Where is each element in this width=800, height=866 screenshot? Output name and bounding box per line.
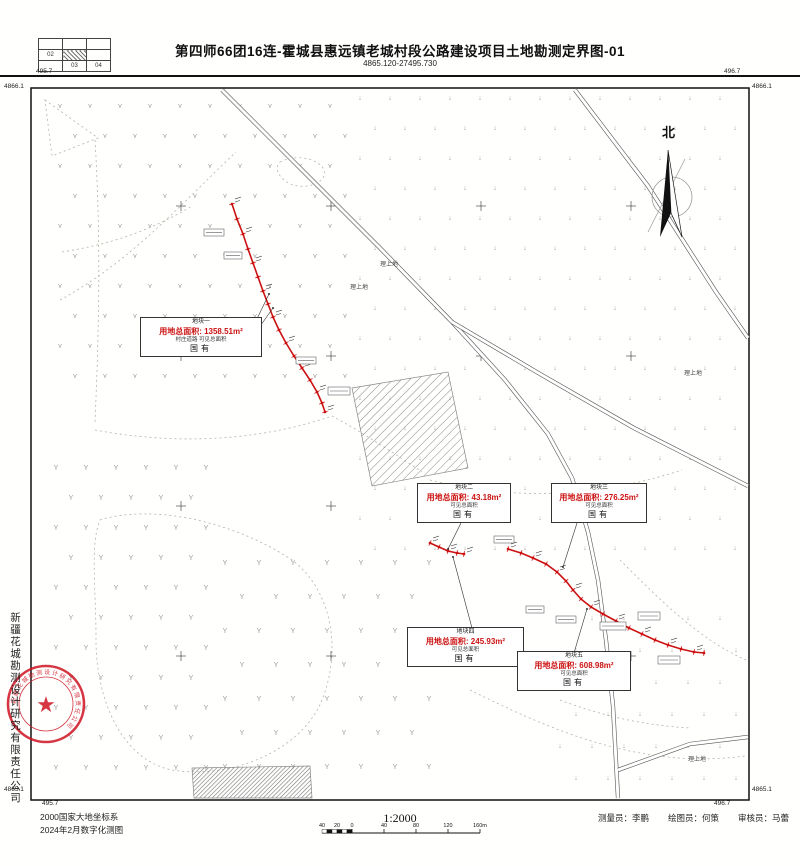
svg-text:↓: ↓ (523, 185, 527, 192)
svg-text:↓: ↓ (628, 335, 632, 342)
svg-text:⋎: ⋎ (117, 103, 122, 110)
parcel-tenure: 国有 (554, 510, 644, 520)
svg-text:↓: ↓ (403, 305, 407, 312)
svg-text:Y: Y (114, 645, 119, 652)
svg-text:↓: ↓ (733, 305, 737, 312)
svg-text:↓: ↓ (673, 305, 677, 312)
svg-text:⋎: ⋎ (102, 193, 107, 200)
svg-text:↓: ↓ (613, 425, 617, 432)
svg-text:Y: Y (223, 696, 228, 703)
svg-text:⋎: ⋎ (117, 163, 122, 170)
svg-text:⋎: ⋎ (297, 223, 302, 230)
svg-text:↓: ↓ (583, 365, 587, 372)
svg-text:↓: ↓ (433, 125, 437, 132)
svg-text:⋎: ⋎ (192, 253, 197, 260)
svg-text:Y: Y (84, 525, 89, 532)
svg-text:⋎: ⋎ (147, 163, 152, 170)
svg-text:↓: ↓ (718, 95, 722, 102)
svg-text:Y: Y (274, 594, 279, 601)
svg-text:↓: ↓ (638, 775, 642, 782)
svg-text:⋎: ⋎ (177, 223, 182, 230)
svg-text:↓: ↓ (628, 275, 632, 282)
svg-text:⋎: ⋎ (342, 373, 347, 380)
svg-text:↓: ↓ (590, 615, 594, 622)
svg-text:Y: Y (257, 628, 262, 635)
svg-text:↓: ↓ (658, 395, 662, 402)
svg-text:⋎: ⋎ (222, 133, 227, 140)
svg-text:↓: ↓ (718, 679, 722, 686)
parcel-tenure: 国有 (410, 654, 521, 664)
svg-text:Y: Y (159, 495, 164, 502)
svg-text:⋎: ⋎ (57, 223, 62, 230)
svg-text:⋎: ⋎ (252, 193, 257, 200)
svg-text:↓: ↓ (622, 743, 626, 750)
svg-text:Y: Y (223, 628, 228, 635)
svg-text:Y: Y (84, 465, 89, 472)
svg-text:Y: Y (174, 585, 179, 592)
svg-text:↓: ↓ (568, 275, 572, 282)
svg-text:↓: ↓ (493, 245, 497, 252)
svg-text:↓: ↓ (358, 455, 362, 462)
svg-text:↓: ↓ (688, 335, 692, 342)
svg-text:↓: ↓ (733, 485, 737, 492)
svg-text:⋎: ⋎ (87, 283, 92, 290)
parcel-area: 用地总面积: 1358.51m² (143, 327, 259, 337)
parcel-tenure: 国有 (143, 344, 259, 354)
svg-text:↓: ↓ (448, 155, 452, 162)
svg-text:↓: ↓ (478, 95, 482, 102)
svg-text:⋎: ⋎ (57, 103, 62, 110)
svg-text:⋎: ⋎ (147, 283, 152, 290)
svg-text:↓: ↓ (613, 365, 617, 372)
svg-text:↓: ↓ (583, 185, 587, 192)
svg-text:↓: ↓ (718, 275, 722, 282)
svg-text:↓: ↓ (418, 215, 422, 222)
svg-text:⋎: ⋎ (222, 193, 227, 200)
parcel-number: 地块一 (143, 319, 259, 327)
svg-text:↓: ↓ (613, 305, 617, 312)
svg-text:↓: ↓ (508, 395, 512, 402)
svg-text:⋎: ⋎ (222, 373, 227, 380)
svg-text:Y: Y (54, 585, 59, 592)
svg-text:↓: ↓ (686, 679, 690, 686)
svg-text:↓: ↓ (478, 215, 482, 222)
svg-text:Y: Y (359, 628, 364, 635)
svg-text:↓: ↓ (643, 125, 647, 132)
svg-text:↓: ↓ (388, 275, 392, 282)
svg-text:↓: ↓ (433, 365, 437, 372)
svg-text:⋎: ⋎ (87, 163, 92, 170)
svg-text:↓: ↓ (568, 455, 572, 462)
svg-text:↓: ↓ (463, 185, 467, 192)
svg-text:Y: Y (376, 662, 381, 669)
svg-text:⋎: ⋎ (252, 373, 257, 380)
svg-text:⋎: ⋎ (267, 223, 272, 230)
svg-text:↓: ↓ (508, 215, 512, 222)
svg-text:Y: Y (359, 560, 364, 567)
svg-text:↓: ↓ (654, 679, 658, 686)
svg-text:↓: ↓ (670, 775, 674, 782)
svg-text:↓: ↓ (703, 185, 707, 192)
svg-text:Y: Y (144, 765, 149, 772)
corner-label-topleft-easting: 495.7 (36, 68, 52, 75)
svg-text:Y: Y (376, 594, 381, 601)
svg-text:Y: Y (144, 465, 149, 472)
svg-text:↓: ↓ (703, 245, 707, 252)
svg-text:↓: ↓ (373, 485, 377, 492)
svg-text:Y: Y (174, 465, 179, 472)
svg-text:↓: ↓ (658, 155, 662, 162)
svg-text:↓: ↓ (358, 215, 362, 222)
svg-text:⋎: ⋎ (282, 133, 287, 140)
svg-text:Y: Y (410, 594, 415, 601)
svg-text:Y: Y (427, 560, 432, 567)
svg-text:↓: ↓ (703, 485, 707, 492)
svg-text:↓: ↓ (553, 245, 557, 252)
svg-text:↓: ↓ (448, 275, 452, 282)
svg-text:⋎: ⋎ (117, 223, 122, 230)
svg-text:Y: Y (144, 645, 149, 652)
svg-text:↓: ↓ (583, 425, 587, 432)
svg-text:⋎: ⋎ (297, 103, 302, 110)
svg-text:⋎: ⋎ (132, 193, 137, 200)
parcel-number: 地块二 (420, 485, 508, 493)
svg-text:↓: ↓ (598, 335, 602, 342)
parcel-annotation-5: 地块五 用地总面积: 608.98m² 可见总面积 国有 (517, 651, 631, 691)
svg-text:↓: ↓ (598, 455, 602, 462)
svg-text:Y: Y (204, 525, 209, 532)
svg-text:↓: ↓ (688, 515, 692, 522)
svg-text:Y: Y (427, 696, 432, 703)
svg-text:↓: ↓ (702, 711, 706, 718)
svg-text:Y: Y (159, 675, 164, 682)
svg-text:⋎: ⋎ (57, 283, 62, 290)
svg-text:Y: Y (114, 765, 119, 772)
svg-text:↓: ↓ (718, 515, 722, 522)
svg-text:↓: ↓ (638, 647, 642, 654)
svg-text:⋎: ⋎ (342, 193, 347, 200)
svg-text:Y: Y (325, 628, 330, 635)
svg-text:↓: ↓ (463, 425, 467, 432)
svg-text:Y: Y (410, 730, 415, 737)
svg-text:↓: ↓ (718, 615, 722, 622)
svg-text:⋎: ⋎ (312, 373, 317, 380)
svg-text:Y: Y (291, 560, 296, 567)
svg-text:↓: ↓ (658, 455, 662, 462)
svg-text:⋎: ⋎ (252, 133, 257, 140)
svg-text:↓: ↓ (388, 95, 392, 102)
svg-text:↓: ↓ (418, 335, 422, 342)
svg-text:⋎: ⋎ (72, 193, 77, 200)
svg-text:↓: ↓ (403, 185, 407, 192)
svg-text:Y: Y (189, 675, 194, 682)
svg-text:↓: ↓ (523, 545, 527, 552)
svg-text:⋎: ⋎ (132, 133, 137, 140)
svg-text:↓: ↓ (538, 95, 542, 102)
svg-text:↓: ↓ (673, 545, 677, 552)
svg-text:↓: ↓ (658, 515, 662, 522)
svg-text:Y: Y (129, 615, 134, 622)
svg-text:↓: ↓ (508, 455, 512, 462)
svg-text:⋎: ⋎ (267, 343, 272, 350)
svg-text:↓: ↓ (388, 215, 392, 222)
svg-text:↓: ↓ (583, 125, 587, 132)
svg-text:↓: ↓ (673, 245, 677, 252)
svg-text:Y: Y (325, 560, 330, 567)
svg-text:Y: Y (204, 705, 209, 712)
svg-text:↓: ↓ (613, 545, 617, 552)
svg-text:⋎: ⋎ (132, 313, 137, 320)
svg-text:⋎: ⋎ (117, 343, 122, 350)
svg-text:⋎: ⋎ (252, 253, 257, 260)
svg-text:Y: Y (308, 594, 313, 601)
svg-text:⋎: ⋎ (57, 343, 62, 350)
parcel-number: 地块三 (554, 485, 644, 493)
svg-text:Y: Y (189, 615, 194, 622)
svg-text:↓: ↓ (388, 155, 392, 162)
svg-text:↓: ↓ (493, 185, 497, 192)
svg-text:Y: Y (189, 735, 194, 742)
svg-text:↓: ↓ (688, 95, 692, 102)
svg-text:↓: ↓ (673, 485, 677, 492)
svg-text:Y: Y (69, 555, 74, 562)
svg-text:⋎: ⋎ (72, 253, 77, 260)
svg-text:⋎: ⋎ (87, 103, 92, 110)
parcel-annotation-1: 地块一 用地总面积: 1358.51m² 村庄道路 可见总面积 国有 (140, 317, 262, 357)
parcel-annotation-3: 地块三 用地总面积: 276.25m² 可见总面积 国有 (551, 483, 647, 523)
svg-text:Y: Y (223, 560, 228, 567)
svg-text:Y: Y (189, 555, 194, 562)
svg-text:⋎: ⋎ (192, 133, 197, 140)
corner-label-topright-northing: 4866.1 (752, 83, 772, 90)
svg-text:Y: Y (114, 585, 119, 592)
svg-text:↓: ↓ (598, 155, 602, 162)
svg-text:↓: ↓ (643, 365, 647, 372)
svg-text:↓: ↓ (448, 335, 452, 342)
svg-text:Y: Y (129, 555, 134, 562)
svg-text:↓: ↓ (568, 155, 572, 162)
svg-text:↓: ↓ (703, 365, 707, 372)
svg-text:↓: ↓ (568, 95, 572, 102)
svg-text:↓: ↓ (373, 305, 377, 312)
svg-text:↓: ↓ (628, 95, 632, 102)
svg-text:⋎: ⋎ (327, 103, 332, 110)
svg-text:Y: Y (69, 615, 74, 622)
svg-text:Y: Y (54, 645, 59, 652)
svg-text:↓: ↓ (553, 365, 557, 372)
land-type-label: 理上地 (688, 754, 706, 763)
corner-label-bottomright-easting: 496.7 (714, 800, 730, 807)
svg-text:↓: ↓ (523, 425, 527, 432)
svg-text:↓: ↓ (478, 455, 482, 462)
svg-text:↓: ↓ (538, 395, 542, 402)
svg-text:Y: Y (174, 525, 179, 532)
svg-text:⋎: ⋎ (147, 223, 152, 230)
svg-text:↓: ↓ (613, 185, 617, 192)
svg-text:Y: Y (129, 675, 134, 682)
svg-text:Y: Y (174, 705, 179, 712)
svg-text:↓: ↓ (553, 125, 557, 132)
svg-text:Y: Y (393, 696, 398, 703)
svg-text:Y: Y (342, 730, 347, 737)
svg-text:Y: Y (99, 555, 104, 562)
svg-text:↓: ↓ (613, 245, 617, 252)
svg-text:⋎: ⋎ (162, 253, 167, 260)
svg-text:Y: Y (114, 465, 119, 472)
svg-text:Y: Y (240, 594, 245, 601)
parcel-area: 用地总面积: 245.93m² (410, 637, 521, 647)
svg-text:↓: ↓ (478, 395, 482, 402)
svg-text:↓: ↓ (373, 125, 377, 132)
parcel-area: 用地总面积: 276.25m² (554, 493, 644, 503)
svg-text:↓: ↓ (433, 245, 437, 252)
svg-text:Y: Y (427, 764, 432, 771)
svg-text:⋎: ⋎ (177, 283, 182, 290)
svg-text:Y: Y (114, 525, 119, 532)
svg-text:⋎: ⋎ (102, 133, 107, 140)
svg-text:⋎: ⋎ (162, 133, 167, 140)
survey-map-sheet: 02 0304 第四师66团16连-霍城县惠远镇老城村段公路建设项目土地勘测定界… (0, 0, 800, 866)
reviewer-credit: 审核员：马蕾 (738, 812, 789, 824)
parcel-tenure: 国有 (520, 678, 628, 688)
svg-text:↓: ↓ (688, 395, 692, 402)
svg-text:↓: ↓ (733, 425, 737, 432)
svg-text:↓: ↓ (553, 425, 557, 432)
svg-text:⋎: ⋎ (312, 133, 317, 140)
svg-text:↓: ↓ (373, 545, 377, 552)
svg-text:↓: ↓ (658, 335, 662, 342)
svg-text:★: ★ (36, 692, 56, 717)
parcel-number: 地块四 (410, 629, 521, 637)
svg-text:⋎: ⋎ (87, 223, 92, 230)
svg-text:↓: ↓ (523, 305, 527, 312)
svg-text:↓: ↓ (702, 775, 706, 782)
svg-text:⋎: ⋎ (147, 103, 152, 110)
svg-text:↓: ↓ (553, 185, 557, 192)
svg-text:↓: ↓ (463, 125, 467, 132)
svg-text:⋎: ⋎ (87, 343, 92, 350)
svg-text:↓: ↓ (403, 245, 407, 252)
svg-text:↓: ↓ (718, 455, 722, 462)
svg-text:↓: ↓ (583, 545, 587, 552)
svg-text:↓: ↓ (734, 647, 738, 654)
svg-text:⋎: ⋎ (207, 103, 212, 110)
svg-text:↓: ↓ (643, 545, 647, 552)
svg-text:↓: ↓ (598, 395, 602, 402)
svg-text:↓: ↓ (718, 743, 722, 750)
svg-text:Y: Y (54, 465, 59, 472)
svg-text:↓: ↓ (388, 515, 392, 522)
parcel-tenure: 国有 (420, 510, 508, 520)
svg-text:↓: ↓ (403, 125, 407, 132)
svg-text:↓: ↓ (718, 215, 722, 222)
svg-text:↓: ↓ (418, 95, 422, 102)
svg-text:↓: ↓ (590, 743, 594, 750)
svg-text:↓: ↓ (568, 395, 572, 402)
svg-text:↓: ↓ (613, 125, 617, 132)
svg-text:Y: Y (342, 594, 347, 601)
svg-text:⋎: ⋎ (327, 223, 332, 230)
svg-text:↓: ↓ (523, 485, 527, 492)
svg-text:Y: Y (325, 696, 330, 703)
svg-text:↓: ↓ (686, 615, 690, 622)
land-type-label: 理上地 (380, 259, 398, 268)
svg-text:↓: ↓ (523, 125, 527, 132)
svg-text:↓: ↓ (508, 335, 512, 342)
svg-text:Y: Y (174, 645, 179, 652)
svg-text:↓: ↓ (718, 395, 722, 402)
svg-text:↓: ↓ (553, 545, 557, 552)
svg-text:↓: ↓ (358, 275, 362, 282)
svg-text:⋎: ⋎ (327, 163, 332, 170)
svg-text:⋎: ⋎ (57, 163, 62, 170)
svg-text:Y: Y (359, 696, 364, 703)
svg-text:↓: ↓ (583, 245, 587, 252)
svg-text:⋎: ⋎ (282, 313, 287, 320)
svg-text:↓: ↓ (403, 365, 407, 372)
svg-text:Y: Y (84, 765, 89, 772)
svg-text:⋎: ⋎ (342, 253, 347, 260)
svg-text:↓: ↓ (658, 95, 662, 102)
svg-text:⋎: ⋎ (237, 163, 242, 170)
corner-label-bottomright-northing: 4865.1 (752, 786, 772, 793)
svg-text:⋎: ⋎ (282, 253, 287, 260)
svg-text:⋎: ⋎ (282, 193, 287, 200)
svg-text:Y: Y (84, 645, 89, 652)
svg-text:↓: ↓ (628, 455, 632, 462)
svg-text:↓: ↓ (628, 215, 632, 222)
svg-text:⋎: ⋎ (72, 133, 77, 140)
svg-text:↓: ↓ (643, 305, 647, 312)
svg-text:Y: Y (393, 560, 398, 567)
svg-text:Y: Y (325, 764, 330, 771)
svg-text:⋎: ⋎ (327, 343, 332, 350)
svg-text:Y: Y (54, 525, 59, 532)
svg-text:↓: ↓ (538, 335, 542, 342)
svg-text:↓: ↓ (418, 275, 422, 282)
svg-text:Y: Y (159, 735, 164, 742)
svg-text:Y: Y (129, 495, 134, 502)
svg-text:↓: ↓ (523, 245, 527, 252)
svg-text:↓: ↓ (733, 365, 737, 372)
svg-text:⋎: ⋎ (132, 253, 137, 260)
svg-text:↓: ↓ (568, 335, 572, 342)
svg-text:⋎: ⋎ (297, 283, 302, 290)
company-name-vertical: 新疆花城勘测设计研究有限责任公司 (8, 612, 23, 817)
svg-text:Y: Y (257, 560, 262, 567)
corner-label-topright-easting: 496.7 (724, 68, 740, 75)
svg-text:↓: ↓ (553, 305, 557, 312)
svg-text:⋎: ⋎ (102, 373, 107, 380)
svg-text:↓: ↓ (643, 245, 647, 252)
svg-text:↓: ↓ (734, 775, 738, 782)
svg-text:↓: ↓ (538, 155, 542, 162)
svg-text:↓: ↓ (703, 545, 707, 552)
svg-text:⋎: ⋎ (342, 313, 347, 320)
svg-text:↓: ↓ (508, 155, 512, 162)
svg-text:↓: ↓ (718, 155, 722, 162)
svg-text:↓: ↓ (478, 155, 482, 162)
svg-text:⋎: ⋎ (237, 283, 242, 290)
svg-text:↓: ↓ (574, 711, 578, 718)
svg-text:⋎: ⋎ (207, 163, 212, 170)
svg-text:↓: ↓ (703, 125, 707, 132)
svg-text:↓: ↓ (688, 275, 692, 282)
svg-text:↓: ↓ (654, 743, 658, 750)
svg-text:↓: ↓ (538, 455, 542, 462)
svg-text:⋎: ⋎ (162, 373, 167, 380)
svg-text:↓: ↓ (493, 125, 497, 132)
